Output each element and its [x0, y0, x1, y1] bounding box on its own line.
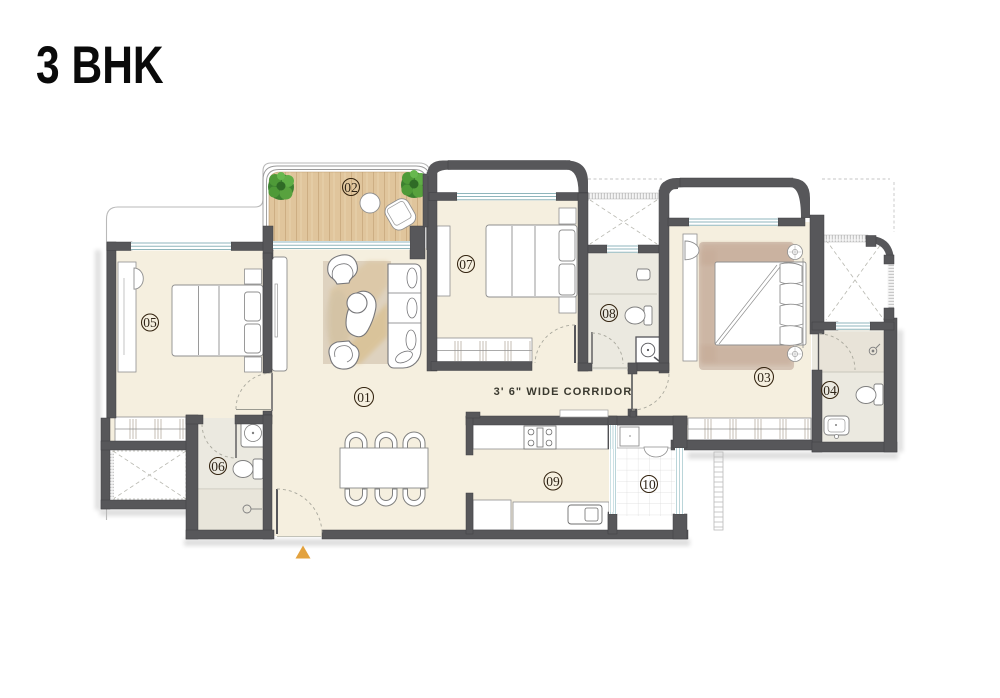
- svg-text:10: 10: [642, 477, 656, 492]
- svg-text:04: 04: [823, 383, 837, 398]
- svg-text:09: 09: [546, 474, 560, 489]
- svg-text:05: 05: [143, 315, 157, 330]
- svg-text:02: 02: [344, 180, 358, 195]
- svg-text:08: 08: [602, 306, 616, 321]
- svg-text:06: 06: [211, 459, 225, 474]
- svg-text:07: 07: [459, 257, 473, 272]
- svg-text:3' 6" WIDE CORRIDOR: 3' 6" WIDE CORRIDOR: [494, 386, 633, 398]
- svg-text:01: 01: [357, 390, 371, 405]
- svg-text:03: 03: [757, 370, 771, 385]
- svg-text:3 BHK: 3 BHK: [36, 37, 164, 95]
